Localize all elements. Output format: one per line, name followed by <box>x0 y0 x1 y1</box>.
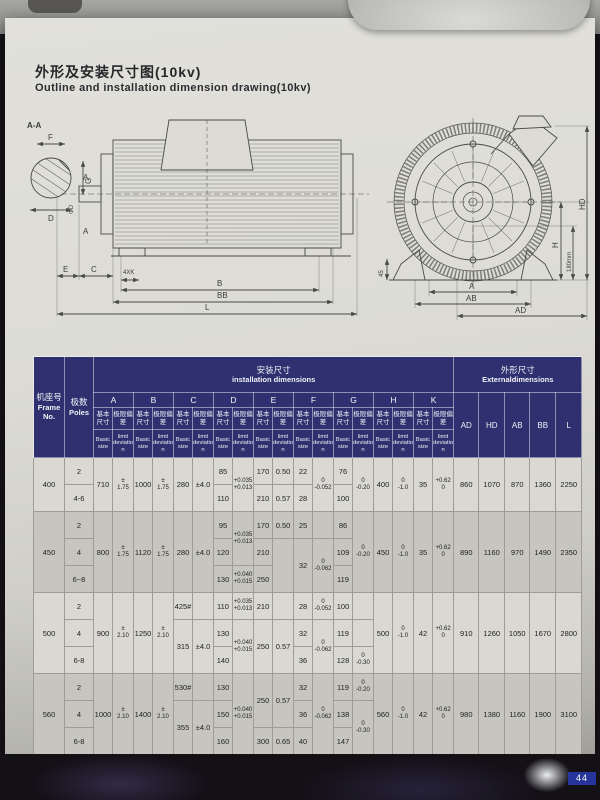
table-cell: +0.040 +0.015 <box>233 566 254 593</box>
table-cell: 28 <box>294 593 313 620</box>
table-cell: 130 <box>214 566 233 593</box>
table-cell: 119 <box>334 566 353 593</box>
header-limit-en: limit deviation <box>193 430 214 458</box>
header-installation-en: installation dimensions <box>94 375 453 384</box>
table-cell: 0 -0.20 <box>353 674 374 701</box>
header-dim-K: K <box>414 393 454 408</box>
table-cell: 1380 <box>479 674 505 755</box>
table-cell: 1250 <box>134 593 153 674</box>
table-cell: 130 <box>214 620 233 647</box>
header-basic-en: Basic size <box>94 430 113 458</box>
table-cell: 0 -0.052 <box>313 458 334 512</box>
table-cell: 280 <box>174 512 193 593</box>
header-dim-G: G <box>334 393 374 408</box>
dim-label-b: B <box>217 279 222 288</box>
table-cell: ±4.0 <box>193 620 214 674</box>
dim-label-e: E <box>63 265 68 274</box>
table-cell: 35 <box>414 458 433 512</box>
table-cell: 910 <box>454 593 479 674</box>
dim-label-45: 45 <box>379 270 385 277</box>
table-cell: 1160 <box>505 674 530 755</box>
header-basic-cn: 基本尺寸 <box>254 408 273 430</box>
header-ext-L: L <box>556 393 582 458</box>
table-cell: 86 <box>334 512 353 539</box>
table-cell: 0 -0.062 <box>313 539 334 593</box>
table-cell: 22 <box>294 458 313 485</box>
table-cell: ± 2.10 <box>153 593 174 674</box>
table-cell: 0 -0.30 <box>353 701 374 755</box>
table-cell: 890 <box>454 512 479 593</box>
header-limit-cn: 极限偏差 <box>233 408 254 430</box>
table-cell: 710 <box>94 458 113 512</box>
table-cell: ± 2.10 <box>113 593 134 674</box>
header-limit-en: limit deviation <box>113 430 134 458</box>
header-basic-en: Basic size <box>174 430 193 458</box>
table-cell: 2 <box>65 593 94 620</box>
table-cell: 1000 <box>94 674 113 755</box>
table-cell: 1070 <box>479 458 505 512</box>
table-cell: 0.50 <box>273 458 294 485</box>
header-poles: 极数 Poles <box>65 357 94 458</box>
table-cell: 250 <box>254 620 273 674</box>
table-cell <box>353 593 374 620</box>
table-cell: 128 <box>334 647 353 674</box>
header-basic-cn: 基本尺寸 <box>174 408 193 430</box>
table-cell: 28 <box>294 485 313 512</box>
table-cell: 36 <box>294 647 313 674</box>
table-cell: 0.50 <box>273 512 294 539</box>
table-cell: 32 <box>294 674 313 701</box>
table-cell: 870 <box>505 458 530 512</box>
table-cell: 130 <box>214 674 233 701</box>
table-cell: 860 <box>454 458 479 512</box>
header-basic-cn: 基本尺寸 <box>334 408 353 430</box>
page-title-en: Outline and installation dimension drawi… <box>35 82 311 94</box>
table-cell: 2 <box>65 512 94 539</box>
header-limit-en: limit deviation <box>273 430 294 458</box>
table-cell: 0.65 <box>273 728 294 755</box>
section-cut-label-bottom: A <box>83 227 89 236</box>
header-basic-en: Basic size <box>414 430 433 458</box>
header-limit-cn: 极限偏差 <box>433 408 454 430</box>
table-cell: 42 <box>414 593 433 674</box>
table-cell: 0 -0.052 <box>313 593 334 620</box>
header-basic-en: Basic size <box>374 430 393 458</box>
table-cell: 35 <box>414 512 433 593</box>
table-cell: ±4.0 <box>193 701 214 755</box>
table-cell: 500 <box>34 593 65 674</box>
table-cell: 0.57 <box>273 674 294 728</box>
header-dim-H: H <box>374 393 414 408</box>
table-cell: ±4.0 <box>193 512 214 593</box>
table-cell: 1260 <box>479 593 505 674</box>
table-cell: 450 <box>374 512 393 593</box>
table-cell: 100 <box>334 485 353 512</box>
table-cell <box>273 539 294 593</box>
table-cell: 450 <box>34 512 65 593</box>
table-cell: 40 <box>294 728 313 755</box>
table-cell: 0 -1.0 <box>393 593 414 674</box>
dim-label-hd: HD <box>578 198 587 210</box>
motor-side-view: A A ΦD E C 4XK B BB <box>57 120 369 316</box>
header-frame-cn: 机座号 <box>34 392 64 403</box>
dark-object-top-left <box>28 0 82 13</box>
table-cell: 110 <box>214 593 233 620</box>
table-cell: 2 <box>65 458 94 485</box>
header-poles-en: Poles <box>65 408 93 417</box>
dim-label-a: A <box>469 282 475 291</box>
dim-label-ab: AB <box>466 294 477 303</box>
table-cell: ± 2.10 <box>153 674 174 755</box>
header-limit-en: limit deviation <box>393 430 414 458</box>
metal-object-on-table <box>348 0 590 30</box>
table-cell: 1360 <box>530 458 556 512</box>
dim-label-bb: BB <box>217 291 228 300</box>
table-cell: ± 1.75 <box>153 458 174 512</box>
header-basic-cn: 基本尺寸 <box>214 408 233 430</box>
table-cell: 6-8 <box>65 728 94 755</box>
header-frame-en: Frame No. <box>34 403 64 422</box>
table-cell: 100 <box>334 593 353 620</box>
header-dim-C: C <box>174 393 214 408</box>
table-cell: 0.57 <box>273 485 294 512</box>
header-limit-cn: 极限偏差 <box>353 408 374 430</box>
header-dim-E: E <box>254 393 294 408</box>
table-cell: 400 <box>34 458 65 512</box>
header-external-cn: 外形尺寸 <box>454 365 581 376</box>
dim-label-c: C <box>91 265 97 274</box>
header-limit-en: limit deviation <box>433 430 454 458</box>
dim-label-h: H <box>551 242 560 248</box>
dim-label-180: 180mm <box>567 252 573 272</box>
table-cell: +0.035 +0.013 <box>233 593 254 620</box>
table-cell: 250 <box>254 674 273 728</box>
table-cell: 1400 <box>134 674 153 755</box>
table-cell: 119 <box>334 620 353 647</box>
page-title-cn: 外形及安装尺寸图(10kv) <box>35 62 201 82</box>
header-limit-cn: 极限偏差 <box>273 408 294 430</box>
table-cell: 95 <box>214 512 233 539</box>
table-cell: 210 <box>254 539 273 566</box>
table-cell: 0 -1.0 <box>393 674 414 755</box>
table-cell: 530# <box>174 674 193 701</box>
header-dim-A: A <box>94 393 134 408</box>
header-dim-D: D <box>214 393 254 408</box>
table-cell: 1000 <box>134 458 153 512</box>
photo-background-bottom: 44 <box>0 754 600 800</box>
motor-end-view: " 45 A <box>21 114 589 320</box>
table-cell: 280 <box>174 458 193 512</box>
header-basic-en: Basic size <box>334 430 353 458</box>
table-cell: 1670 <box>530 593 556 674</box>
table-cell: 355 <box>174 701 193 755</box>
table-cell: 0 -0.30 <box>353 647 374 674</box>
header-external: 外形尺寸 Externaldimensions <box>454 357 582 393</box>
header-basic-cn: 基本尺寸 <box>94 408 113 430</box>
header-installation: 安装尺寸 installation dimensions <box>94 357 454 393</box>
dimension-drawing: A-A F G D <box>21 114 593 344</box>
table-cell: 36 <box>294 701 313 728</box>
header-dim-F: F <box>294 393 334 408</box>
table-cell: 500 <box>374 593 393 674</box>
table-cell: 4 <box>65 620 94 647</box>
table-cell: 800 <box>94 512 113 593</box>
table-cell: 109 <box>334 539 353 566</box>
table-cell: 2800 <box>556 593 582 674</box>
header-limit-cn: 极限偏差 <box>193 408 214 430</box>
table-cell: +0.040 +0.015 <box>233 620 254 674</box>
table-cell: ±4.0 <box>193 458 214 512</box>
table-cell: +0.035 +0.013 <box>233 512 254 566</box>
table-cell: 4 <box>65 701 94 728</box>
table-cell: 170 <box>254 512 273 539</box>
dim-label-4xk: 4XK <box>123 270 134 276</box>
page-number-badge: 44 <box>568 772 596 785</box>
header-limit-en: limit deviation <box>313 430 334 458</box>
header-external-en: Externaldimensions <box>454 375 581 384</box>
header-installation-cn: 安装尺寸 <box>94 365 453 376</box>
table-cell: 25 <box>294 512 313 539</box>
table-cell <box>193 593 214 620</box>
table-cell: 970 <box>505 512 530 593</box>
header-ext-BB: BB <box>530 393 556 458</box>
table-cell: ± 1.75 <box>153 512 174 593</box>
table-cell: 1160 <box>479 512 505 593</box>
header-basic-cn: 基本尺寸 <box>294 408 313 430</box>
table-cell: 120 <box>214 539 233 566</box>
table-cell: 150 <box>214 701 233 728</box>
table-cell: 32 <box>294 620 313 647</box>
table-cell: 42 <box>414 674 433 755</box>
table-cell <box>193 674 214 701</box>
table-cell: 2250 <box>556 458 582 512</box>
header-basic-en: Basic size <box>214 430 233 458</box>
table-cell: 0 -0.20 <box>353 458 374 512</box>
table-cell: 138 <box>334 701 353 728</box>
section-cut-label-top: A <box>83 173 89 182</box>
table-cell: 560 <box>374 674 393 755</box>
table-cell: 3100 <box>556 674 582 755</box>
table-cell: +0.040 +0.015 <box>233 674 254 755</box>
table-cell: ± 2.10 <box>113 674 134 755</box>
table-cell: 0 -0.062 <box>313 620 334 674</box>
table-cell: 400 <box>374 458 393 512</box>
header-limit-en: limit deviation <box>233 430 254 458</box>
table-cell: 2350 <box>556 512 582 593</box>
table-cell <box>313 512 334 539</box>
header-basic-cn: 基本尺寸 <box>134 408 153 430</box>
table-cell: 1120 <box>134 512 153 593</box>
table-cell: 210 <box>254 593 273 620</box>
table-cell: 980 <box>454 674 479 755</box>
table-cell: +0.62 0 <box>433 458 454 512</box>
table-cell: 4 <box>65 539 94 566</box>
table-cell: 250 <box>254 566 273 593</box>
table-cell: 110 <box>214 485 233 512</box>
dim-label-ad: AD <box>515 306 526 315</box>
table-cell: 147 <box>334 728 353 755</box>
table-cell: 32 <box>294 539 313 593</box>
header-basic-cn: 基本尺寸 <box>374 408 393 430</box>
header-ext-AD: AD <box>454 393 479 458</box>
table-cell: 1900 <box>530 674 556 755</box>
table-cell: 2 <box>65 674 94 701</box>
header-poles-cn: 极数 <box>65 397 93 408</box>
table-cell: ± 1.75 <box>113 458 134 512</box>
table-cell: 0 -1.0 <box>393 458 414 512</box>
dim-label-d: D <box>48 214 54 223</box>
section-label: A-A <box>27 121 41 130</box>
table-cell: +0.62 0 <box>433 674 454 755</box>
table-cell: +0.62 0 <box>433 593 454 674</box>
header-limit-en: limit deviation <box>353 430 374 458</box>
table-cell: 0 -1.0 <box>393 512 414 593</box>
table-cell: 210 <box>254 485 273 512</box>
table-cell: 4-6 <box>65 485 94 512</box>
header-basic-en: Basic size <box>294 430 313 458</box>
table-cell: 6~8 <box>65 566 94 593</box>
table-cell: 160 <box>214 728 233 755</box>
reflection-highlight <box>524 758 570 792</box>
table-cell <box>273 593 294 620</box>
table-cell: 300 <box>254 728 273 755</box>
table-cell: 900 <box>94 593 113 674</box>
table-cell: 560 <box>34 674 65 755</box>
dimension-table-body: 4002710± 1.751000± 1.75280±4.085+0.035 +… <box>34 458 582 755</box>
header-row-letters: ABCDEFGHKADHDABBBL <box>34 393 582 408</box>
header-limit-cn: 极限偏差 <box>313 408 334 430</box>
header-basic-en: Basic size <box>254 430 273 458</box>
header-limit-cn: 极限偏差 <box>113 408 134 430</box>
table-cell: 76 <box>334 458 353 485</box>
dim-label-l: L <box>205 303 210 312</box>
table-cell: +0.035 +0.013 <box>233 458 254 512</box>
header-limit-cn: 极限偏差 <box>153 408 174 430</box>
table-cell: +0.62 0 <box>433 512 454 593</box>
header-limit-cn: 极限偏差 <box>393 408 414 430</box>
header-frame: 机座号 Frame No. <box>34 357 65 458</box>
catalog-page: 外形及安装尺寸图(10kv) Outline and installation … <box>5 18 595 755</box>
header-ext-HD: HD <box>479 393 505 458</box>
table-cell: 140 <box>214 647 233 674</box>
table-cell: 0.57 <box>273 620 294 674</box>
header-ext-AB: AB <box>505 393 530 458</box>
table-cell: 425# <box>174 593 193 620</box>
header-dim-B: B <box>134 393 174 408</box>
table-cell: 1050 <box>505 593 530 674</box>
table-cell: ± 1.75 <box>113 512 134 593</box>
table-cell: 0 -0.20 <box>353 512 374 593</box>
table-cell: 1490 <box>530 512 556 593</box>
header-basic-en: Basic size <box>134 430 153 458</box>
table-cell: 170 <box>254 458 273 485</box>
shaft-diameter-label: ΦD <box>69 204 75 214</box>
table-cell <box>353 620 374 647</box>
dimension-table: 机座号 Frame No. 极数 Poles 安装尺寸 installation… <box>33 356 582 755</box>
table-cell: 119 <box>334 674 353 701</box>
header-limit-en: limit deviation <box>153 430 174 458</box>
table-cell: 315 <box>174 620 193 674</box>
dim-label-f: F <box>48 133 53 142</box>
table-cell: 0 -0.062 <box>313 674 334 755</box>
table-cell: 6-8 <box>65 647 94 674</box>
table-cell: 85 <box>214 458 233 485</box>
header-basic-cn: 基本尺寸 <box>414 408 433 430</box>
